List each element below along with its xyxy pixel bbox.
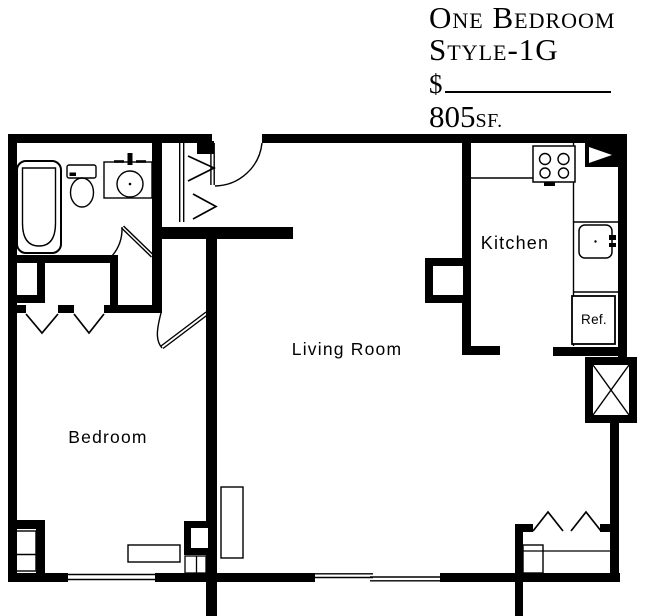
entry-foyer	[160, 141, 293, 239]
area-row: 805SF.	[429, 101, 645, 132]
wall	[618, 134, 627, 357]
corner-vent-icon	[585, 143, 618, 167]
bedroom-closet-chevron	[74, 314, 104, 333]
baseboard-heater	[128, 545, 180, 562]
room-label-bedroom: Bedroom	[68, 429, 147, 447]
wall	[160, 227, 293, 239]
kitchen-sink-icon	[579, 225, 616, 258]
wall	[8, 295, 45, 303]
bedroom-window	[68, 575, 155, 580]
room-label-kitchen: Kitchen	[481, 234, 549, 252]
bathroom-sink-icon	[104, 153, 152, 198]
wall	[36, 520, 45, 573]
plan-title: One Bedroom	[429, 2, 645, 34]
wall	[152, 134, 162, 313]
entry-door	[211, 143, 262, 186]
closet-door-chevron	[533, 512, 563, 531]
wall	[8, 255, 112, 263]
living-room	[184, 357, 637, 578]
wall	[262, 134, 627, 143]
room-label-refrigerator: Ref.	[581, 313, 607, 327]
wall	[515, 524, 523, 578]
wall	[8, 134, 17, 582]
closet-shelf-box	[523, 545, 543, 573]
shaft-icon	[585, 357, 637, 423]
duct-chase	[425, 258, 471, 303]
wall	[610, 420, 619, 582]
toilet-icon	[67, 165, 96, 207]
bedroom-door	[157, 312, 208, 349]
bedroom-corner-cabinet	[8, 520, 45, 573]
wall	[440, 573, 620, 582]
area-value: 805	[429, 99, 476, 134]
bathtub-icon	[17, 161, 61, 253]
hvac-unit	[221, 487, 243, 558]
plan-style: Style-1G	[429, 34, 645, 66]
bathroom	[8, 134, 162, 313]
living-room-closet	[515, 512, 619, 578]
wall	[600, 524, 619, 532]
closet-door-chevron	[571, 512, 601, 531]
area-unit: SF.	[476, 110, 503, 132]
wall	[462, 346, 500, 355]
wall	[155, 573, 315, 582]
outer-walls	[8, 134, 627, 616]
wall	[104, 305, 160, 313]
closet-door-chevron	[193, 194, 216, 219]
stove-icon	[533, 146, 575, 186]
price-blank-line	[445, 90, 611, 93]
wall	[110, 255, 118, 313]
wall	[8, 134, 212, 143]
title-block: One Bedroom Style-1G $ 805SF.	[429, 2, 645, 132]
price-symbol: $	[429, 69, 443, 99]
bedroom-closet-chevron	[26, 314, 58, 333]
price-row: $	[429, 71, 645, 98]
wall	[515, 582, 523, 616]
floorplan-canvas: One Bedroom Style-1G $ 805SF. Kitchen Li…	[0, 0, 650, 616]
wall	[8, 573, 68, 582]
room-label-living-room: Living Room	[292, 341, 402, 359]
wall	[206, 228, 217, 616]
wall	[462, 143, 471, 355]
closet-door-chevron	[188, 156, 214, 181]
wall	[58, 305, 74, 313]
living-room-window	[315, 574, 440, 581]
wall	[553, 347, 627, 356]
wall	[8, 305, 26, 313]
bathroom-door	[112, 226, 154, 257]
